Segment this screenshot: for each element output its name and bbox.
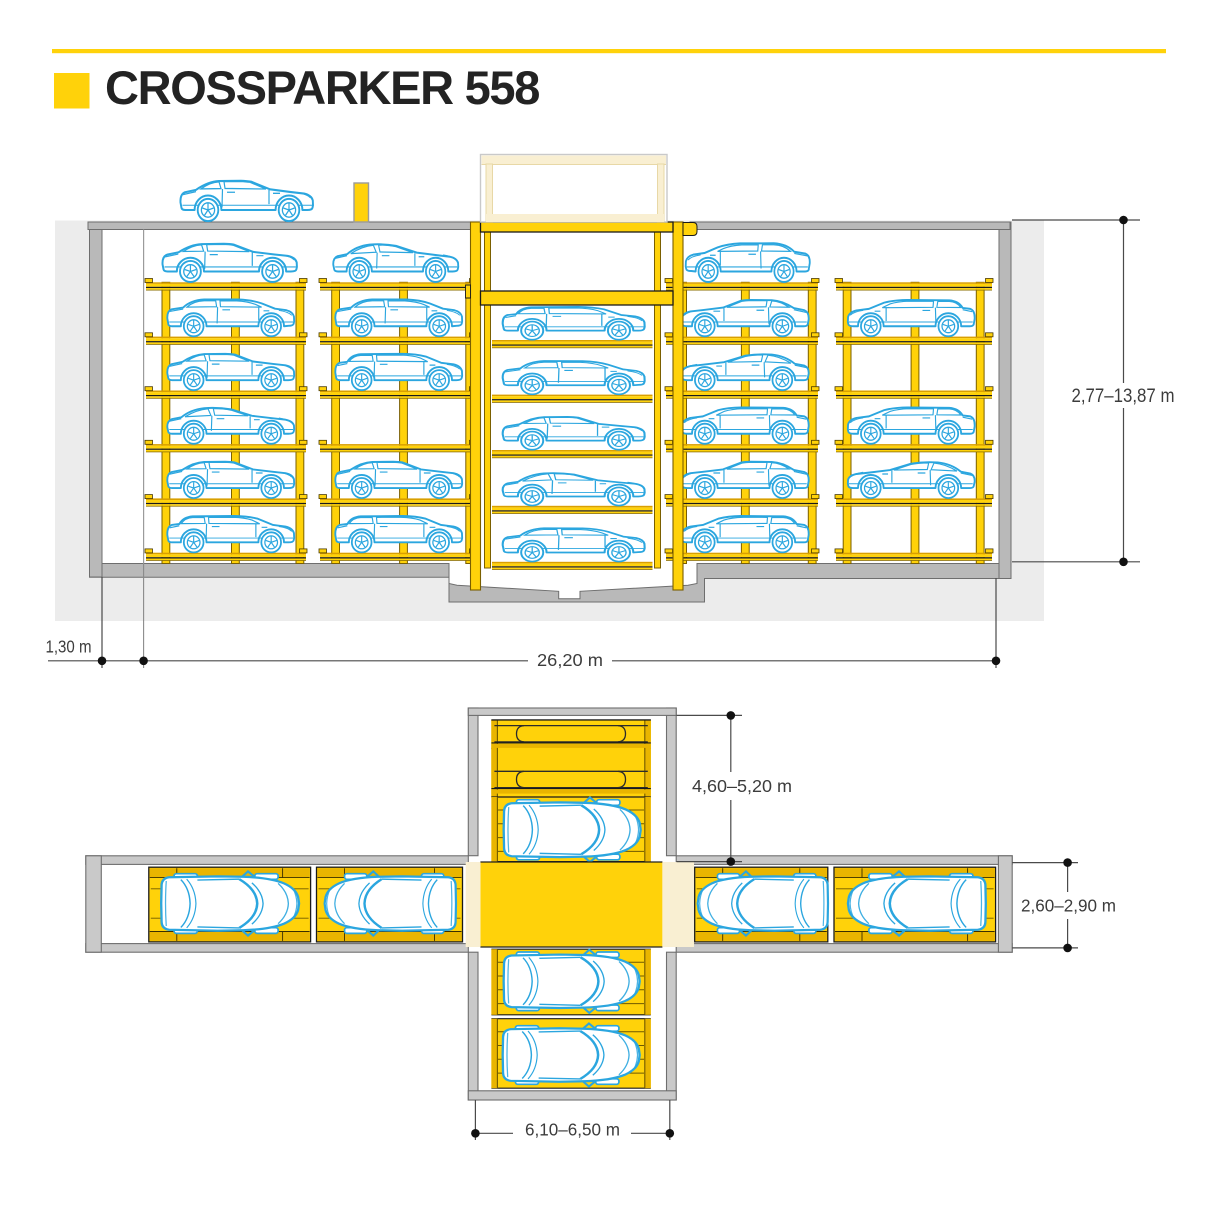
svg-text:2,77–13,87 m: 2,77–13,87 m [1072,386,1175,407]
svg-text:4,60–5,20 m: 4,60–5,20 m [692,776,792,796]
svg-text:26,20 m: 26,20 m [537,650,603,670]
svg-text:6,10–6,50 m: 6,10–6,50 m [525,1120,620,1140]
svg-text:1,30 m: 1,30 m [46,637,92,657]
svg-text:2,60–2,90 m: 2,60–2,90 m [1021,896,1116,916]
svg-text:CROSSPARKER 558: CROSSPARKER 558 [105,61,539,114]
